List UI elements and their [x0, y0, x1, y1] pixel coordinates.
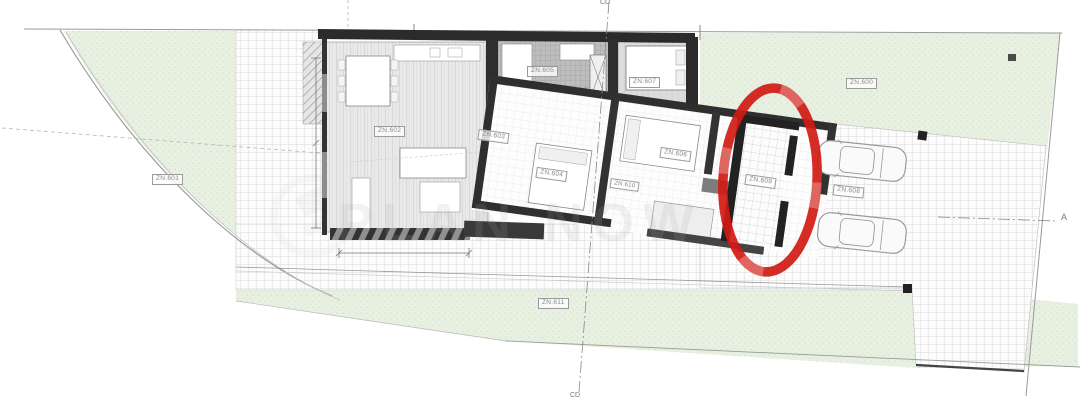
zone-label-zn600: ZN.600: [846, 78, 877, 89]
zone-label-zn611: ZN.611: [538, 298, 569, 309]
floor-plan-drawing: [0, 0, 1080, 418]
wall-left: [322, 39, 327, 235]
post-2: [903, 284, 912, 293]
marker-dot: [1008, 54, 1016, 61]
zone-label-zn602: ZN.602: [374, 126, 405, 137]
section-marker-cd-top: CD: [600, 0, 610, 6]
dining-table: [346, 56, 390, 106]
zone-label-zn607: ZN.607: [629, 77, 660, 88]
post-1: [917, 130, 927, 140]
sliding-door: [330, 228, 470, 240]
zone-label-zn601: ZN.601: [152, 174, 183, 185]
section-marker-a: A: [1061, 213, 1067, 222]
kitchen-counter: [394, 45, 480, 61]
kitchen-island: [400, 148, 466, 178]
section-marker-cd-bottom: CD: [570, 392, 580, 399]
floor-plan-screenshot: ZN.602 ZN.601 ZN.605 ZN.607 ZN.603 ZN.60…: [0, 0, 1080, 418]
washbasin: [560, 44, 594, 60]
cabinet: [352, 178, 370, 236]
wall-bottom-block: [464, 221, 545, 240]
zone-label-zn605: ZN.605: [527, 66, 558, 77]
hatch-neighbor-corner: [303, 42, 323, 124]
